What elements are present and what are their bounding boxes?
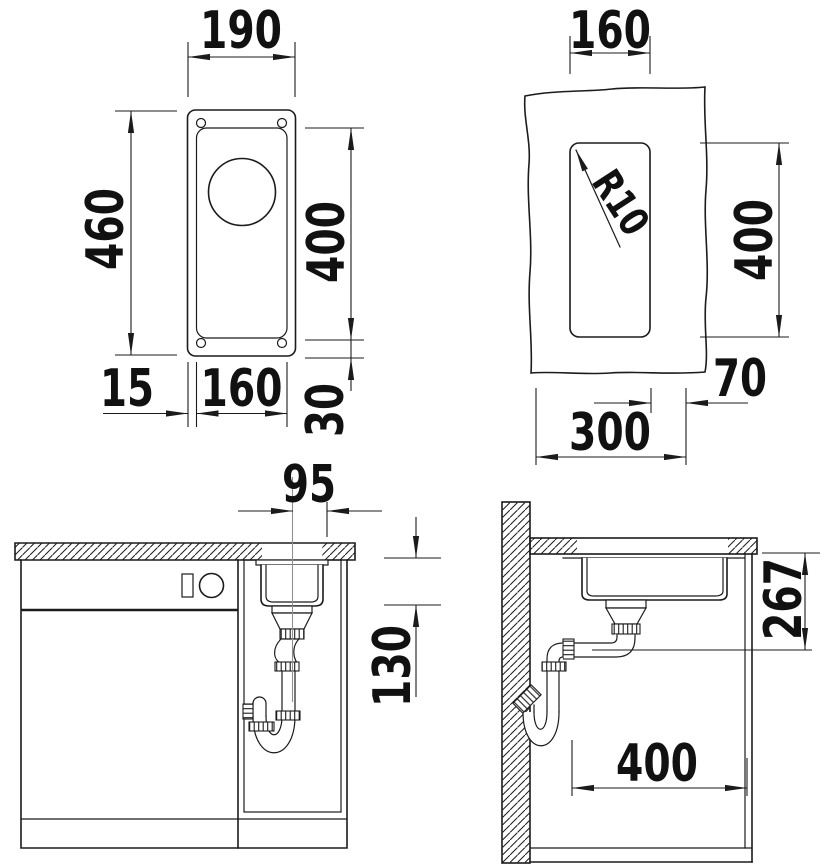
dim-overall-length: 460: [76, 188, 136, 270]
drain-elbow: [275, 639, 299, 663]
technical-drawing-page: 190 460 400 30 15 160 R10: [0, 0, 828, 868]
drain-elbow-side: [574, 634, 635, 657]
dim-cabinet-depth: 400: [616, 734, 698, 794]
drain-assembly-front: [243, 606, 312, 753]
worktop-hatch-left: [15, 543, 262, 560]
drain-assembly-side: [513, 600, 646, 746]
dim-bowl-depth: 130: [363, 625, 423, 707]
pipe-collar-mid: [276, 711, 300, 720]
trap-cap: [253, 697, 266, 704]
front-view: 95 130: [15, 455, 441, 848]
worktop-hatch-back: [530, 538, 577, 554]
dim-cutout-length: 400: [725, 199, 785, 281]
worktop-hatch-right: [322, 543, 355, 560]
dim-cutout-width: 160: [569, 1, 651, 61]
dim-drain-height: 267: [754, 558, 814, 640]
dim-end-offset: 30: [296, 383, 356, 437]
pipe-collar-horizontal: [563, 639, 574, 659]
dim-bowl-length: 400: [297, 201, 357, 283]
top-view: 190 460 400 30 15 160: [76, 1, 364, 437]
down-elbow-side: [547, 643, 563, 712]
dim-center-to-edge: 95: [282, 455, 336, 515]
side-view: 267 400: [502, 502, 820, 863]
trap-side-nut: [243, 704, 253, 719]
pipe-collar-side: [542, 662, 566, 671]
appliance-knob: [200, 574, 224, 598]
dim-edge-offset: 15: [100, 359, 154, 419]
cutout-view: R10 160 400 70 300: [525, 1, 789, 465]
dim-overall-width: 190: [200, 1, 282, 61]
drawing-canvas: 190 460 400 30 15 160 R10: [0, 0, 828, 868]
dim-bowl-width: 160: [201, 359, 283, 419]
appliance-display: [182, 574, 193, 597]
sink-outline: [188, 110, 296, 356]
wall-section: [502, 502, 530, 863]
bowl-outer-side: [582, 558, 727, 600]
pipe-collar-lower: [249, 722, 274, 731]
drain-nut-side: [612, 624, 640, 634]
dim-side-offset: 70: [713, 349, 767, 409]
dim-cabinet-width: 300: [569, 403, 651, 463]
worktop-hatch-front: [728, 538, 757, 554]
pipe-collar-upper: [275, 662, 299, 671]
